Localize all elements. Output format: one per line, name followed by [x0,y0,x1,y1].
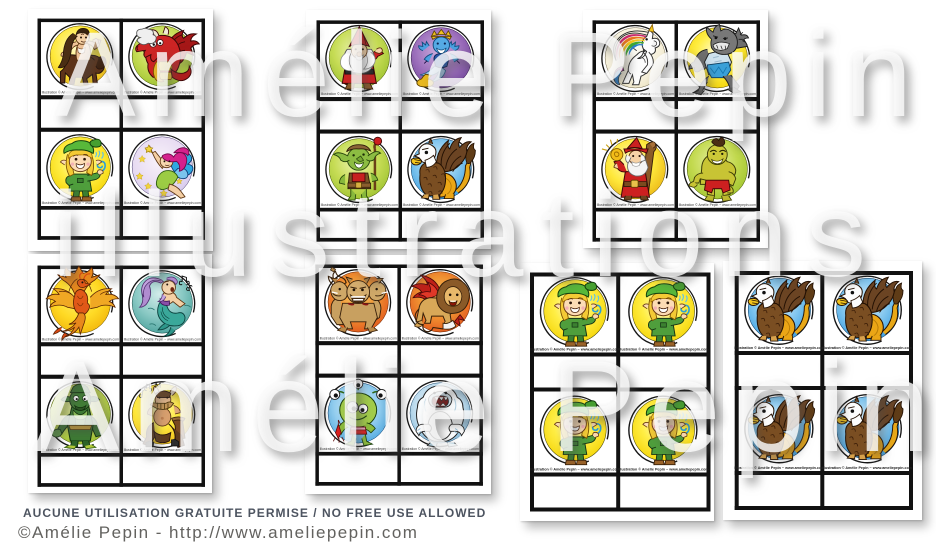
svg-text:Illustration © Amélie Pepin ~: Illustration © Amélie Pepin ~ www.amelie… [124,448,201,452]
svg-text:Illustration © Amélie Pepin ~: Illustration © Amélie Pepin ~ www.amelie… [618,347,709,351]
svg-text:Illustration © Amélie Pepin ~: Illustration © Amélie Pepin ~ www.amelie… [320,92,397,96]
svg-text:Illustration © Amélie Pepin ~: Illustration © Amélie Pepin ~ www.amelie… [822,466,913,470]
svg-text:Illustration © Amélie Pepin ~: Illustration © Amélie Pepin ~ www.amelie… [596,92,673,96]
svg-text:Illustration © Amélie Pepin ~: Illustration © Amélie Pepin ~ www.amelie… [734,346,825,350]
svg-text:Illustration © Amélie Pepin ~: Illustration © Amélie Pepin ~ www.amelie… [734,466,825,470]
svg-text:Illustration © Amélie Pepin ~: Illustration © Amélie Pepin ~ www.amelie… [41,90,118,94]
svg-text:Illustration © Amélie Pepin ~: Illustration © Amélie Pepin ~ www.amelie… [42,448,119,452]
svg-text:Illustration © Amélie Pepin ~: Illustration © Amélie Pepin ~ www.amelie… [530,467,621,471]
svg-text:Illustration © Amélie Pepin ~: Illustration © Amélie Pepin ~ www.amelie… [320,336,397,340]
svg-text:Illustration © Amélie Pepin ~: Illustration © Amélie Pepin ~ www.amelie… [822,346,913,350]
svg-text:Illustration © Amélie Pepin ~: Illustration © Amélie Pepin ~ www.amelie… [123,90,200,94]
svg-text:Illustration © Amélie Pepin ~: Illustration © Amélie Pepin ~ www.amelie… [678,92,755,96]
svg-text:Illustration © Amélie Pepin ~: Illustration © Amélie Pepin ~ www.amelie… [530,347,621,351]
svg-text:Illustration © Amélie Pepin ~: Illustration © Amélie Pepin ~ www.amelie… [41,201,118,205]
svg-text:Illustration © Amélie Pepin ~: Illustration © Amélie Pepin ~ www.amelie… [320,447,397,451]
svg-text:Illustration © Amélie Pepin ~: Illustration © Amélie Pepin ~ www.amelie… [678,203,755,207]
svg-text:Illustration © Amélie Pepin ~: Illustration © Amélie Pepin ~ www.amelie… [124,337,201,341]
svg-text:Illustration © Amélie Pepin ~: Illustration © Amélie Pepin ~ www.amelie… [123,201,200,205]
svg-text:Illustration © Amélie Pepin ~: Illustration © Amélie Pepin ~ www.amelie… [42,337,119,341]
svg-text:Illustration © Amélie Pepin ~: Illustration © Amélie Pepin ~ www.amelie… [596,203,673,207]
svg-text:Illustration © Amélie Pepin ~: Illustration © Amélie Pepin ~ www.amelie… [618,467,709,471]
svg-text:Illustration © Amélie Pepin ~: Illustration © Amélie Pepin ~ www.amelie… [402,336,479,340]
svg-text:Illustration © Amélie Pepin ~: Illustration © Amélie Pepin ~ www.amelie… [402,92,479,96]
svg-text:Illustration © Amélie Pepin ~: Illustration © Amélie Pepin ~ www.amelie… [402,203,479,207]
svg-text:Illustration © Amélie Pepin ~: Illustration © Amélie Pepin ~ www.amelie… [402,447,479,451]
svg-text:Illustration © Amélie Pepin ~: Illustration © Amélie Pepin ~ www.amelie… [320,203,397,207]
